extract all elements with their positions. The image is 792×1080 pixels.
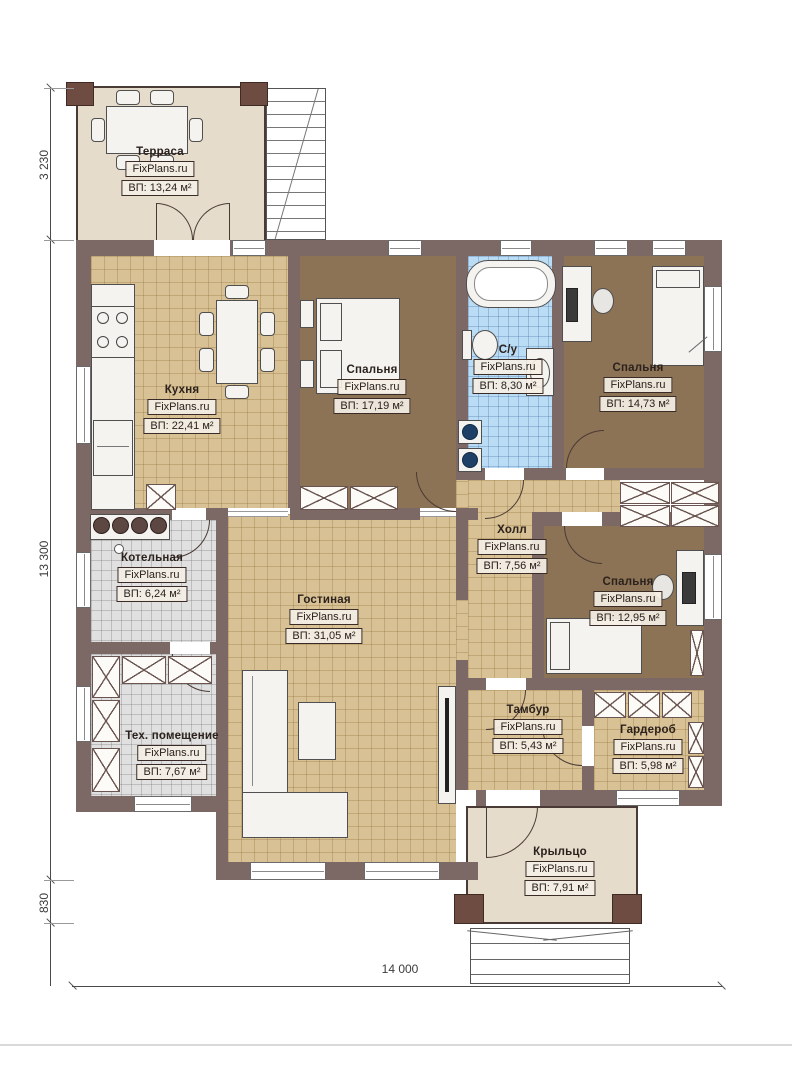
chair	[116, 90, 140, 105]
step-line	[471, 959, 629, 960]
closet	[671, 482, 719, 504]
dim-house-depth: 13 300	[37, 525, 51, 593]
shelf	[92, 748, 120, 792]
shelf	[168, 656, 212, 684]
room-name: Гардероб	[620, 724, 676, 736]
room-area: ВП: 7,67 м²	[136, 764, 207, 780]
room-name: Тамбур	[507, 704, 550, 716]
watermark-fixplans: FixPlans.ru	[493, 719, 562, 735]
closet	[671, 505, 719, 527]
watermark-fixplans: FixPlans.ru	[593, 591, 662, 607]
dim-terrace-depth: 3 230	[37, 135, 51, 195]
room-name: Терраса	[136, 146, 184, 158]
window	[704, 554, 722, 620]
room-label-wardrobe: Гардероб FixPlans.ru ВП: 5,98 м²	[612, 724, 683, 774]
wall	[604, 468, 722, 480]
page-divider	[0, 1044, 792, 1046]
shelf	[122, 656, 166, 684]
wall	[210, 642, 222, 654]
shelf	[92, 656, 120, 698]
wall	[216, 520, 228, 880]
wardrobe-closet	[594, 692, 626, 718]
monitor	[682, 572, 696, 604]
boiler-unit	[131, 517, 148, 534]
dimension-line-horizontal	[72, 986, 722, 987]
closet	[620, 505, 670, 527]
window	[388, 240, 422, 256]
room-label-tech: Тех. помещение FixPlans.ru ВП: 7,67 м²	[125, 730, 219, 780]
room-label-bathroom: С/у FixPlans.ru ВП: 8,30 м²	[472, 344, 543, 394]
room-name: Гостиная	[297, 594, 351, 606]
closet	[300, 486, 348, 510]
room-name: Котельная	[121, 552, 183, 564]
dim-porch-drop: 830	[37, 875, 51, 931]
wardrobe-closet	[628, 692, 660, 718]
wardrobe-closet	[688, 722, 704, 754]
room-area: ВП: 14,73 м²	[599, 396, 676, 412]
room-name: Спальня	[346, 364, 397, 376]
fridge-line	[97, 446, 129, 447]
room-area: ВП: 13,24 м²	[121, 180, 198, 196]
washer-drum	[462, 424, 478, 440]
watermark-fixplans: FixPlans.ru	[477, 539, 546, 555]
terrace-stairs	[266, 88, 326, 240]
pillow	[656, 270, 700, 288]
watermark-fixplans: FixPlans.ru	[125, 161, 194, 177]
room-name: Кухня	[165, 384, 200, 396]
chair	[199, 348, 214, 372]
chair	[199, 312, 214, 336]
burner	[97, 312, 109, 324]
porch-post	[612, 894, 642, 924]
window	[616, 790, 680, 806]
room-name: Крыльцо	[533, 846, 587, 858]
room-area: ВП: 5,43 м²	[492, 738, 563, 754]
wall	[582, 766, 594, 796]
porch-steps	[470, 928, 630, 984]
room-label-terrace: Терраса FixPlans.ru ВП: 13,24 м²	[121, 146, 198, 196]
kitchen-table	[216, 300, 258, 384]
boiler-unit	[150, 517, 167, 534]
watermark-fixplans: FixPlans.ru	[137, 745, 206, 761]
boiler-unit	[112, 517, 129, 534]
room-area: ВП: 8,30 м²	[472, 378, 543, 394]
room-label-bedroom1: Спальня FixPlans.ru ВП: 17,19 м²	[333, 364, 410, 414]
porch-post	[454, 894, 484, 924]
wardrobe-closet	[688, 756, 704, 788]
door-leaf	[486, 806, 487, 858]
terrace-post	[240, 82, 268, 106]
boiler-unit	[93, 517, 110, 534]
sofa-chaise	[242, 792, 348, 838]
room-name: Холл	[497, 524, 527, 536]
door-opening	[420, 511, 456, 517]
room-label-boiler: Котельная FixPlans.ru ВП: 6,24 м²	[116, 552, 187, 602]
watermark-fixplans: FixPlans.ru	[117, 567, 186, 583]
window	[76, 686, 91, 742]
extension-line	[44, 240, 74, 241]
room-area: ВП: 7,56 м²	[476, 558, 547, 574]
window	[704, 286, 722, 352]
room-area: ВП: 22,41 м²	[143, 418, 220, 434]
room-label-living: Гостиная FixPlans.ru ВП: 31,05 м²	[285, 594, 362, 644]
nightstand	[300, 360, 314, 388]
watermark-fixplans: FixPlans.ru	[289, 609, 358, 625]
closet	[620, 482, 670, 504]
window	[500, 240, 532, 256]
step-line	[471, 943, 629, 944]
bathtub-inner	[474, 267, 548, 301]
wall	[88, 642, 170, 654]
door-leaf	[229, 203, 230, 240]
chair	[260, 312, 275, 336]
watermark-fixplans: FixPlans.ru	[603, 377, 672, 393]
room-name: С/у	[499, 344, 518, 356]
extension-line	[44, 88, 74, 89]
window	[232, 240, 266, 256]
watermark-fixplans: FixPlans.ru	[613, 739, 682, 755]
watermark-fixplans: FixPlans.ru	[147, 399, 216, 415]
room-area: ВП: 31,05 м²	[285, 628, 362, 644]
room-area: ВП: 12,95 м²	[589, 610, 666, 626]
window	[364, 862, 440, 880]
chair	[225, 285, 249, 299]
wardrobe-closet	[662, 692, 692, 718]
opening-floor	[456, 600, 468, 660]
room-label-bedroom3: Спальня FixPlans.ru ВП: 12,95 м²	[589, 576, 666, 626]
closet	[690, 630, 704, 676]
watermark-fixplans: FixPlans.ru	[525, 861, 594, 877]
fridge	[93, 420, 133, 476]
pillow	[320, 303, 342, 341]
chair	[91, 118, 105, 142]
chair	[189, 118, 203, 142]
wall	[468, 678, 486, 690]
room-label-kitchen: Кухня FixPlans.ru ВП: 22,41 м²	[143, 384, 220, 434]
wall	[288, 256, 300, 508]
tv	[445, 698, 449, 792]
window	[594, 240, 628, 256]
room-area: ВП: 5,98 м²	[612, 758, 683, 774]
window	[250, 862, 326, 880]
window	[76, 552, 91, 608]
wall	[456, 690, 468, 790]
sofa-line	[252, 676, 253, 786]
terrace-door-gap	[154, 240, 230, 256]
pillow	[550, 622, 570, 670]
opening-threshold	[228, 511, 288, 517]
wall	[456, 660, 468, 690]
floor-plan: Терраса FixPlans.ru ВП: 13,24 м² Кухня F…	[0, 0, 792, 1080]
terrace-post	[66, 82, 94, 106]
entry-door-gap	[486, 790, 540, 806]
burner	[116, 312, 128, 324]
window	[652, 240, 686, 256]
wall	[456, 512, 468, 600]
monitor	[566, 288, 578, 322]
wall	[526, 678, 722, 690]
room-name: Тех. помещение	[125, 730, 219, 742]
watermark-fixplans: FixPlans.ru	[337, 379, 406, 395]
room-label-hall: Холл FixPlans.ru ВП: 7,56 м²	[476, 524, 547, 574]
room-area: ВП: 7,91 м²	[524, 880, 595, 896]
dryer-drum	[462, 452, 478, 468]
burner	[116, 336, 128, 348]
stairs-slope-line	[272, 88, 320, 240]
toilet-tank	[462, 330, 472, 360]
window	[76, 366, 91, 444]
step-diagonal	[543, 930, 633, 940]
room-area: ВП: 6,24 м²	[116, 586, 187, 602]
burner	[97, 336, 109, 348]
coffee-table	[298, 702, 336, 760]
chair	[150, 90, 174, 105]
step-line	[471, 974, 629, 975]
shelf	[92, 700, 120, 742]
kitchen-unit	[146, 484, 176, 510]
watermark-fixplans: FixPlans.ru	[473, 359, 542, 375]
wall	[552, 468, 566, 480]
door-leaf	[156, 203, 157, 240]
nightstand	[300, 300, 314, 328]
wall	[206, 508, 228, 520]
wall	[582, 690, 594, 726]
room-label-vestibule: Тамбур FixPlans.ru ВП: 5,43 м²	[492, 704, 563, 754]
window	[134, 796, 192, 812]
room-name: Спальня	[612, 362, 663, 374]
room-label-porch: Крыльцо FixPlans.ru ВП: 7,91 м²	[524, 846, 595, 896]
closet	[350, 486, 398, 510]
dim-house-width: 14 000	[360, 962, 440, 976]
chair	[260, 348, 275, 372]
room-name: Спальня	[602, 576, 653, 588]
room-area: ВП: 17,19 м²	[333, 398, 410, 414]
desk-chair	[592, 288, 614, 314]
chair	[225, 385, 249, 399]
room-label-bedroom2: Спальня FixPlans.ru ВП: 14,73 м²	[599, 362, 676, 412]
